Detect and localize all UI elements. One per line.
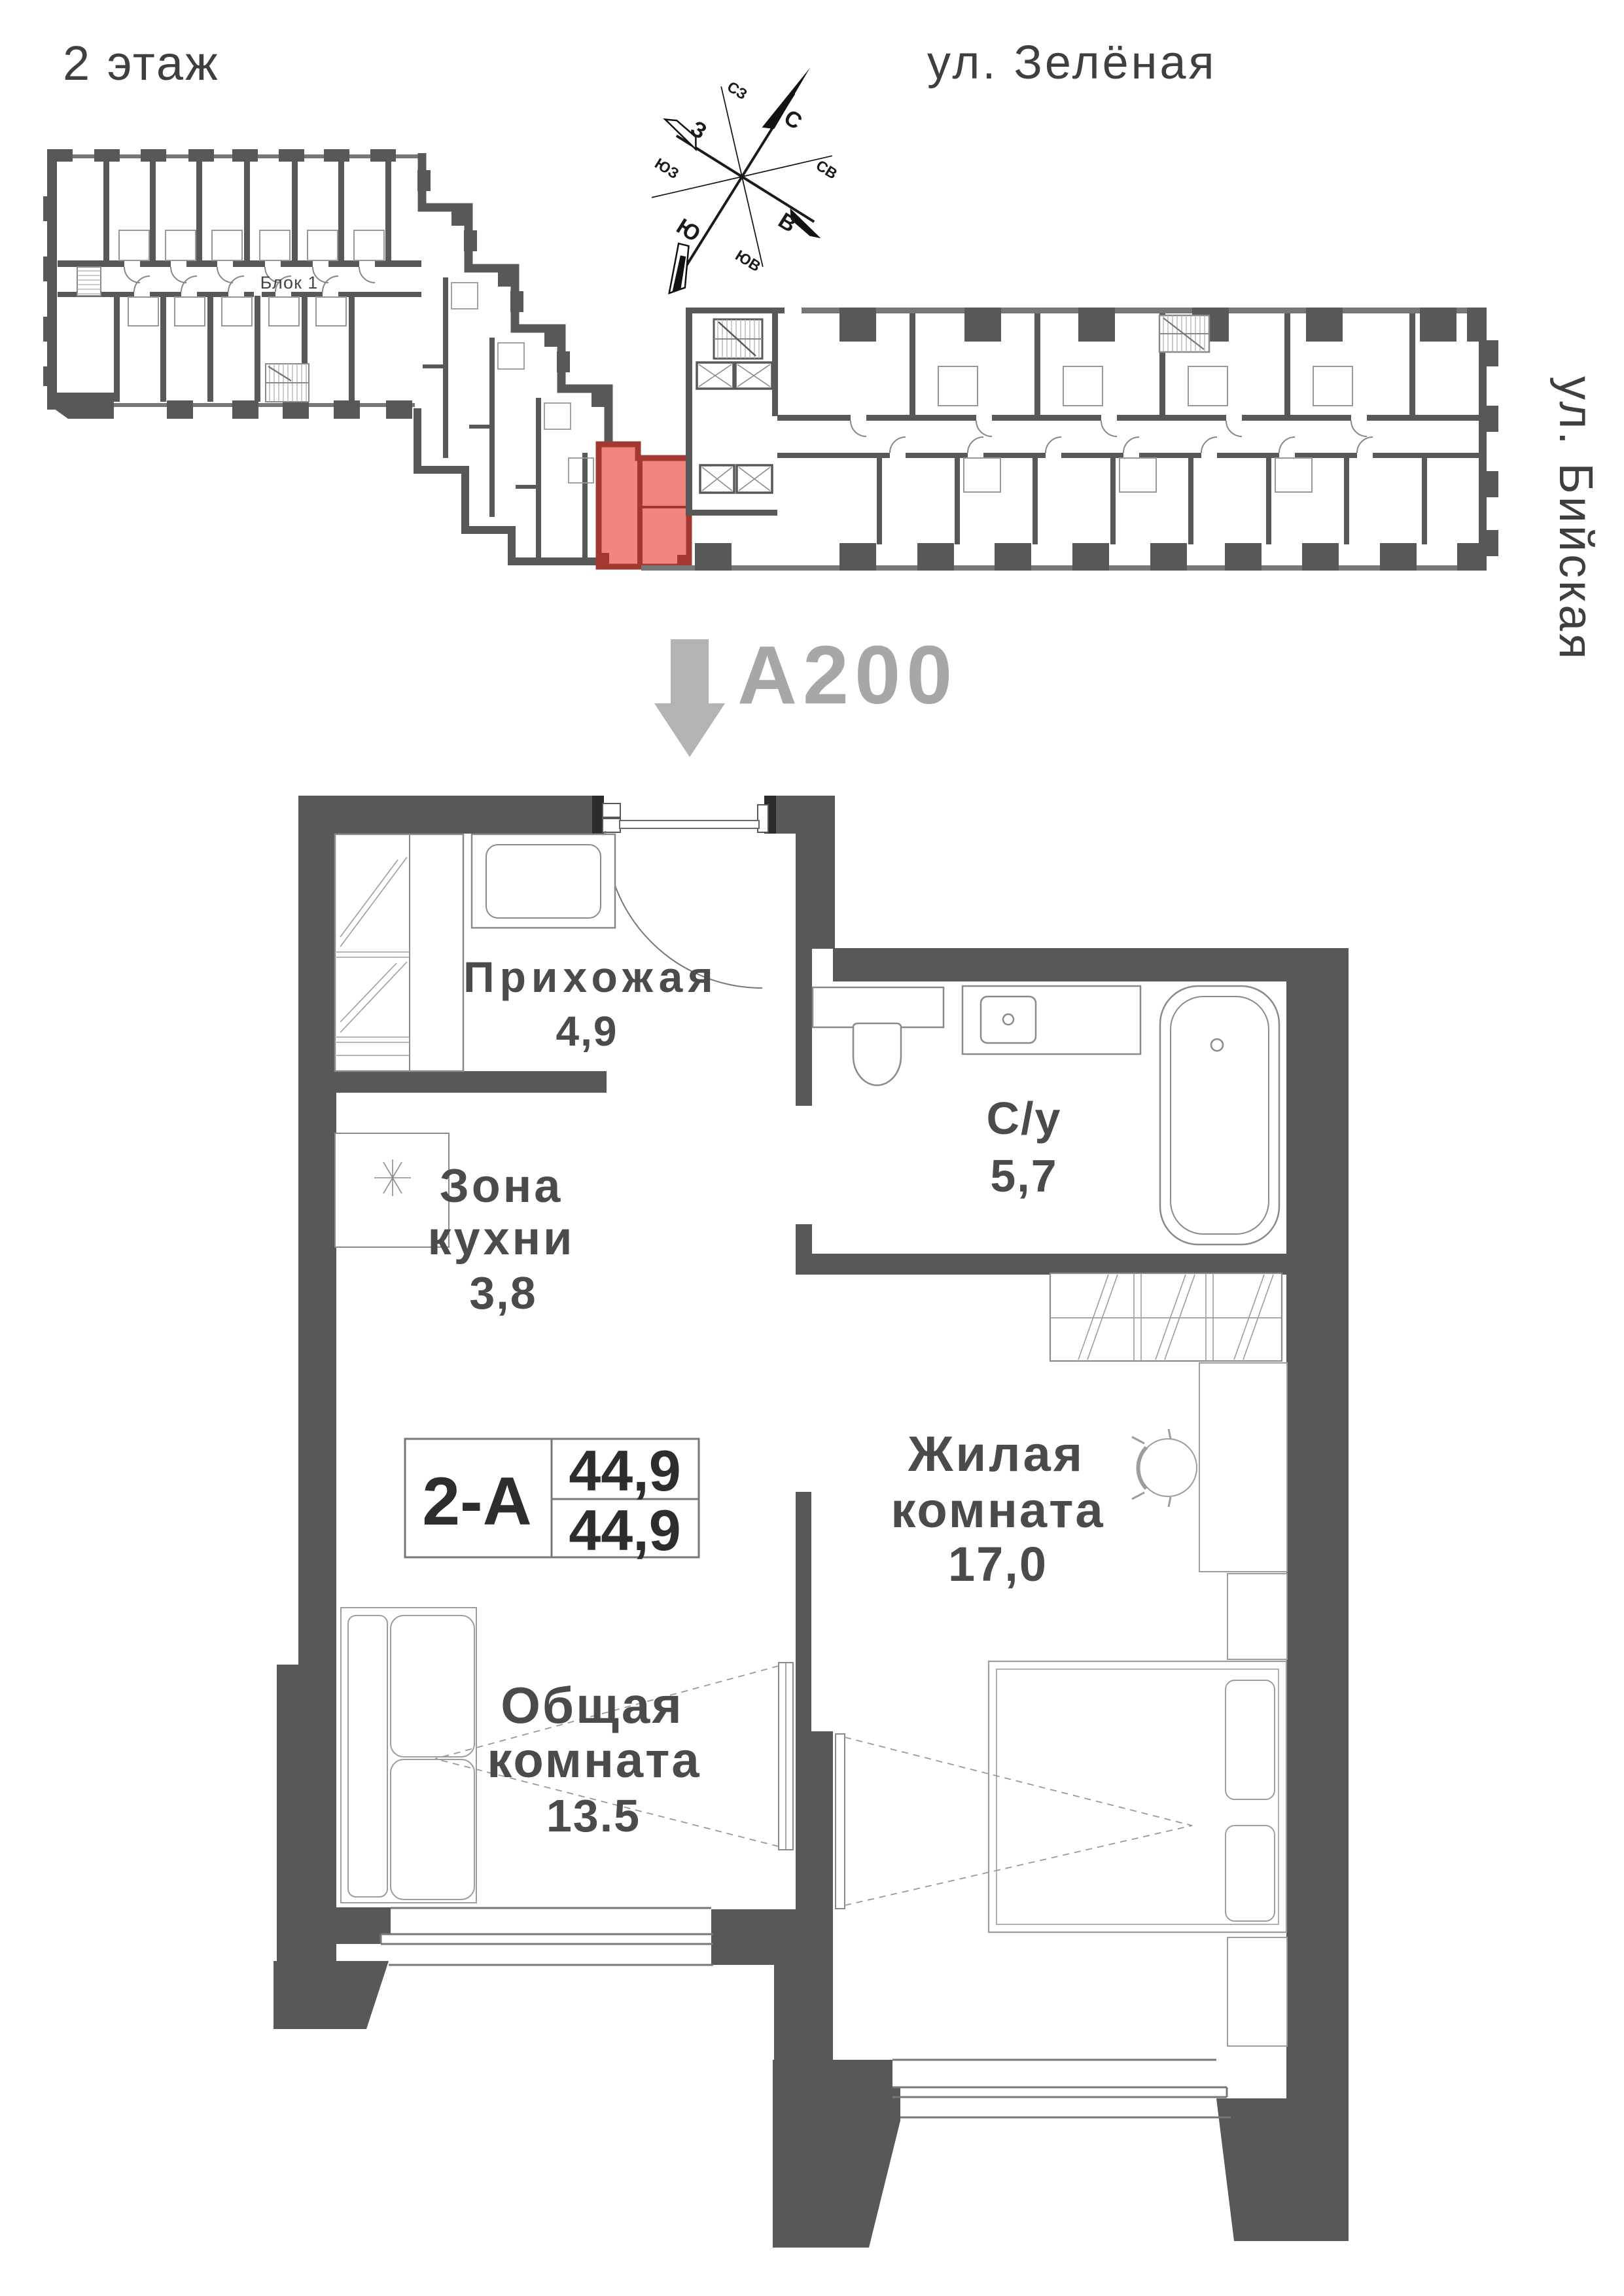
svg-text:17,0: 17,0 <box>948 1537 1048 1591</box>
svg-text:Прихожая: Прихожая <box>463 953 718 1001</box>
svg-text:кухни: кухни <box>428 1212 575 1265</box>
svg-text:Зона: Зона <box>440 1160 563 1212</box>
svg-text:С/у: С/у <box>987 1093 1062 1144</box>
svg-text:Жилая: Жилая <box>908 1426 1085 1482</box>
svg-text:5,7: 5,7 <box>990 1150 1057 1201</box>
svg-text:3,8: 3,8 <box>469 1267 537 1318</box>
svg-text:2 этаж: 2 этаж <box>63 36 220 90</box>
svg-text:А200: А200 <box>737 629 958 721</box>
svg-text:13.5: 13.5 <box>546 1790 641 1841</box>
svg-text:комната: комната <box>487 1733 701 1788</box>
svg-text:Блок 1: Блок 1 <box>260 273 319 292</box>
svg-text:2-А: 2-А <box>422 1464 532 1540</box>
svg-text:ул. Бийская: ул. Бийская <box>1549 376 1602 662</box>
svg-text:44,9: 44,9 <box>569 1498 680 1563</box>
svg-text:44,9: 44,9 <box>569 1438 680 1503</box>
svg-text:Общая: Общая <box>501 1676 684 1734</box>
svg-text:ул. Зелёная: ул. Зелёная <box>927 37 1216 89</box>
svg-text:комната: комната <box>891 1483 1104 1538</box>
svg-text:4,9: 4,9 <box>556 1008 618 1055</box>
